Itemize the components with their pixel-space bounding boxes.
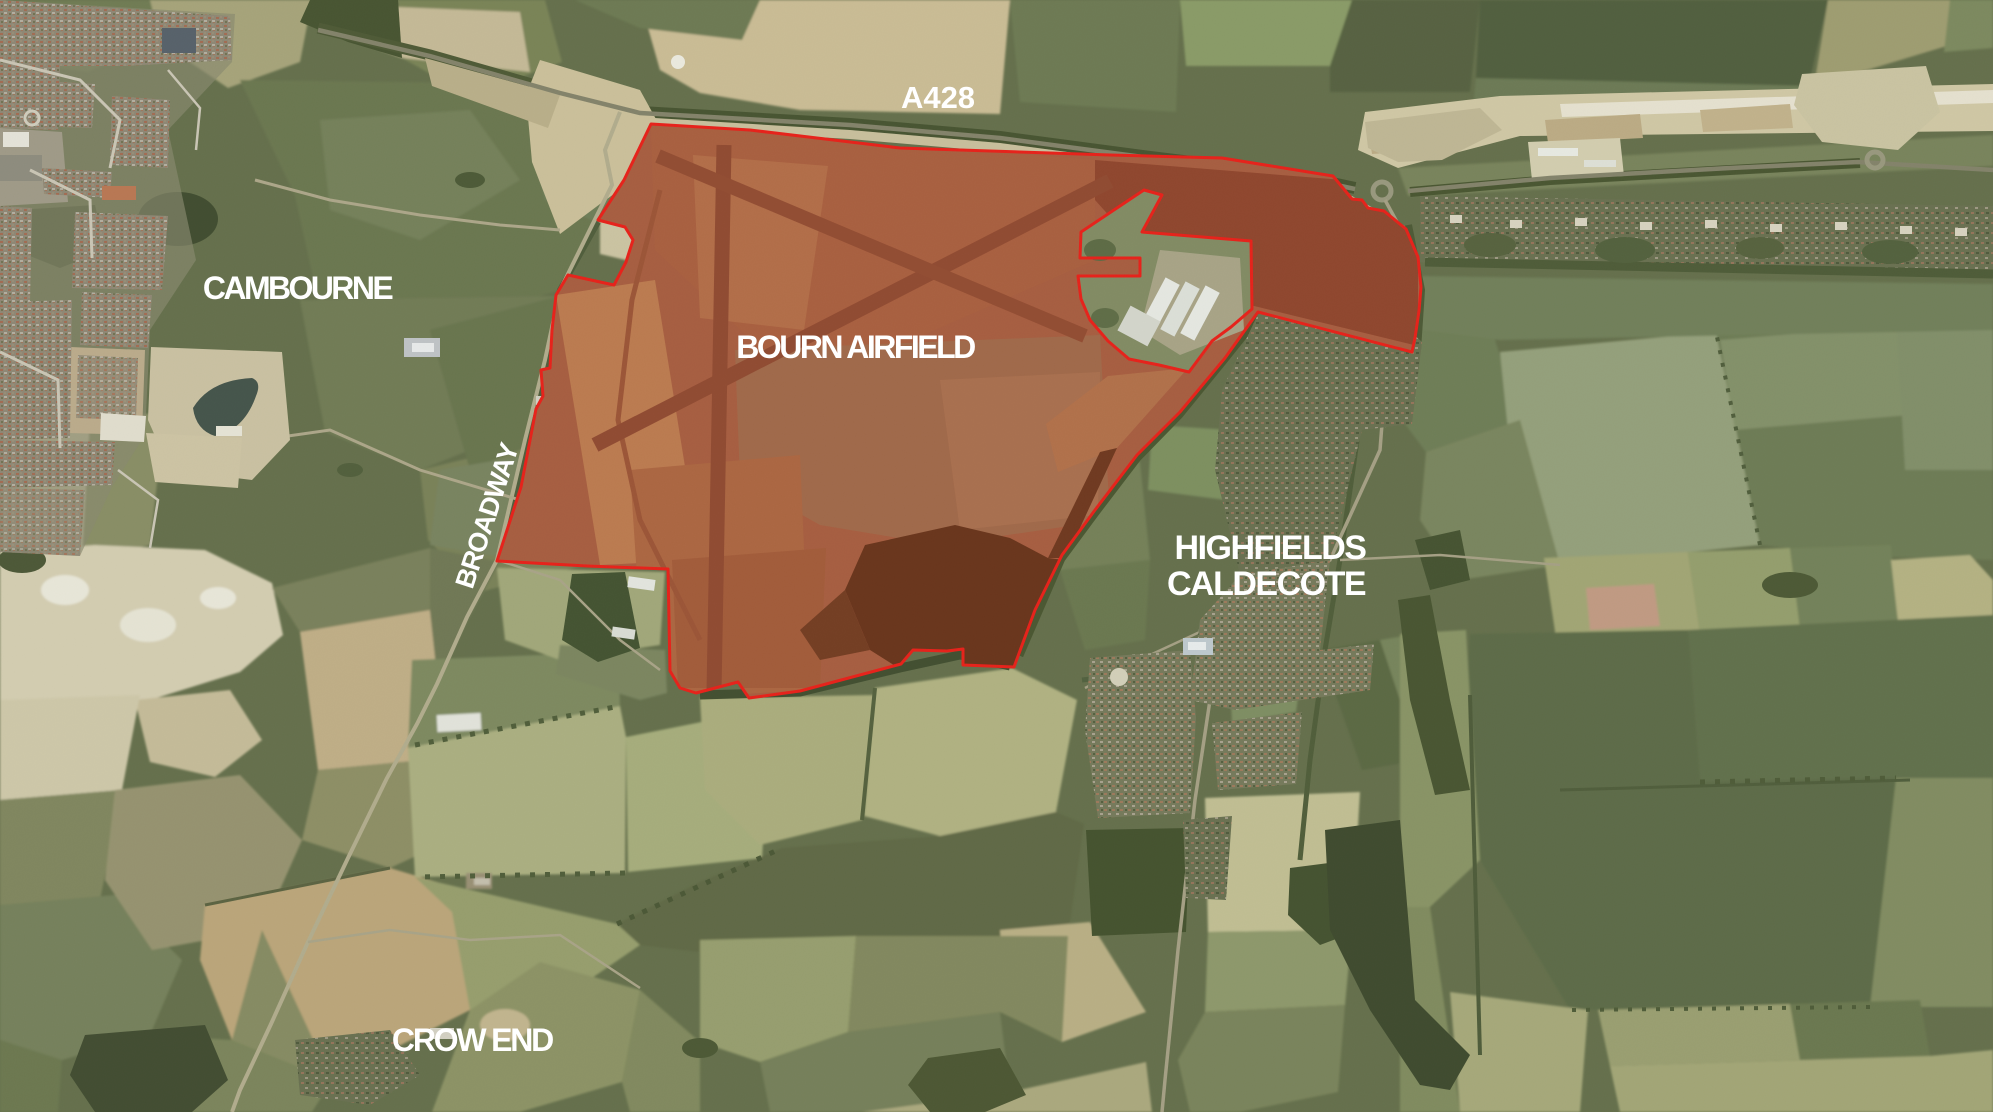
svg-text:BOURN AIRFIELD: BOURN AIRFIELD xyxy=(736,329,975,365)
svg-text:CALDECOTE: CALDECOTE xyxy=(1167,565,1366,603)
svg-text:A428: A428 xyxy=(901,80,975,115)
svg-text:CAMBOURNE: CAMBOURNE xyxy=(203,270,393,306)
svg-text:CROW END: CROW END xyxy=(392,1022,553,1058)
svg-text:HIGHFIELDS: HIGHFIELDS xyxy=(1175,529,1367,567)
